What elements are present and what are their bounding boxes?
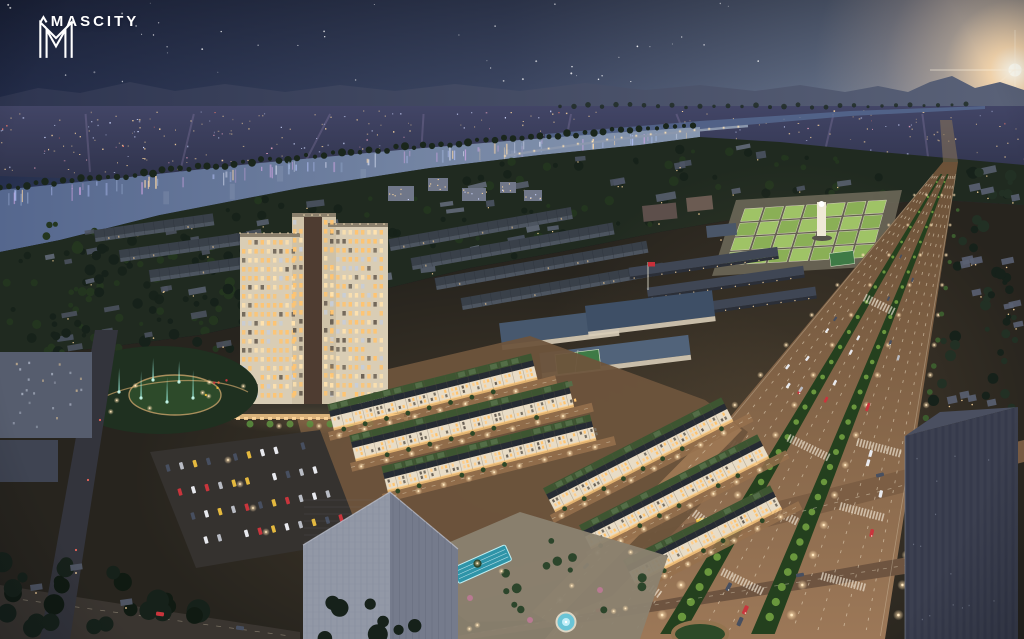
vignette [0,0,1024,639]
monogram-peak [40,17,46,22]
monogram-inner [47,30,66,58]
monogram-outer [40,22,71,58]
mascity-monogram-icon [34,14,78,60]
mascity-aerial-render: MASCITY [0,0,1024,639]
mascity-logo: MASCITY [34,14,156,29]
city-render [0,0,1024,639]
